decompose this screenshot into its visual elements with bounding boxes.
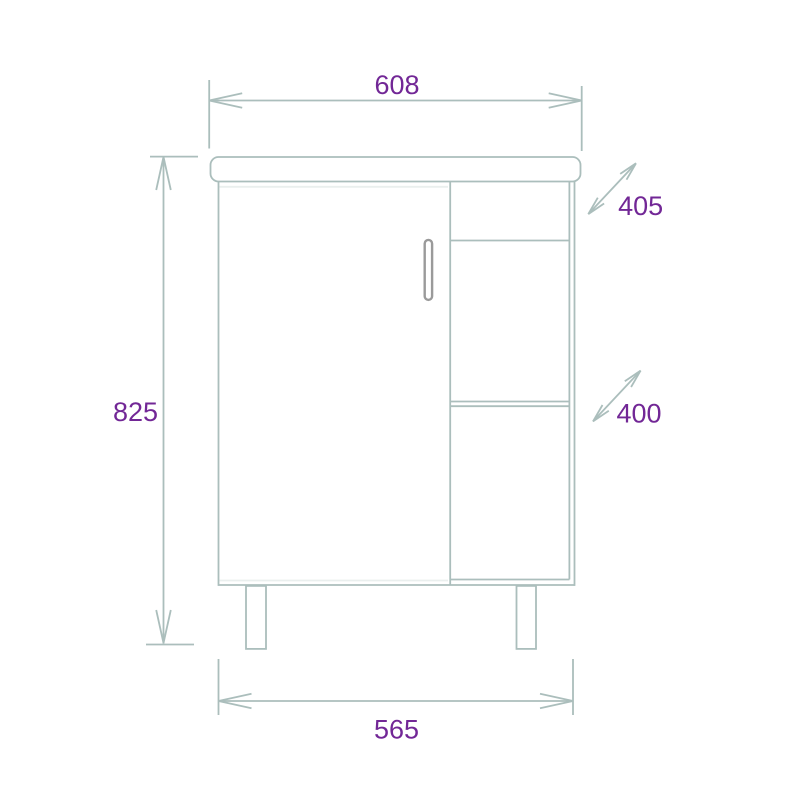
svg-text:565: 565: [374, 715, 419, 745]
svg-text:405: 405: [618, 191, 663, 221]
svg-text:400: 400: [616, 398, 661, 428]
svg-text:608: 608: [374, 70, 419, 100]
svg-text:825: 825: [113, 397, 158, 427]
